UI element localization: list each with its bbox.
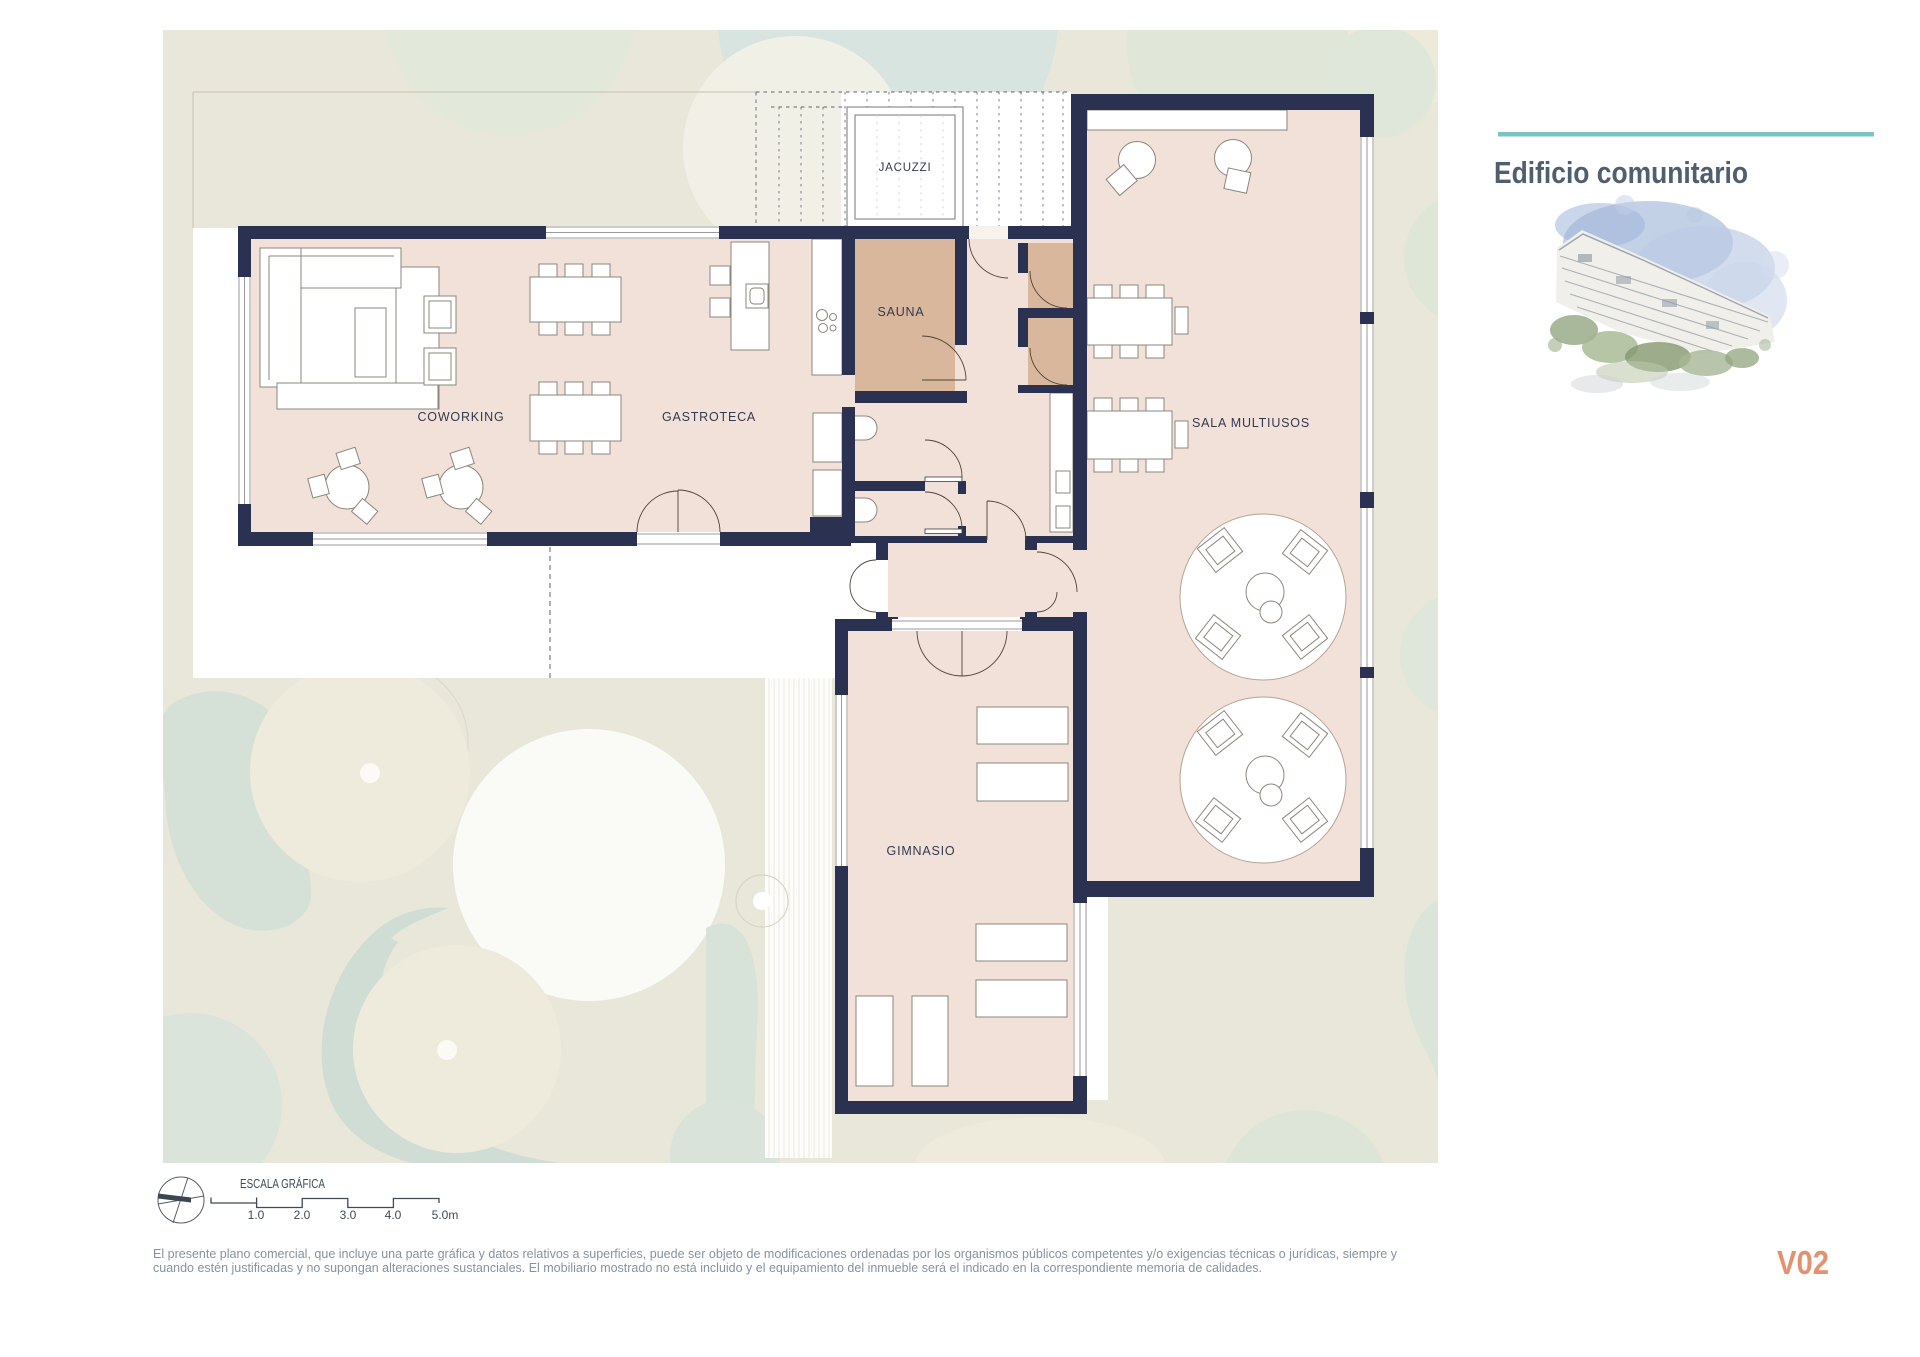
svg-text:2.0: 2.0 — [294, 1208, 311, 1222]
svg-text:El presente plano comercial, q: El presente plano comercial, que incluye… — [153, 1246, 1398, 1261]
svg-text:ESCALA GRÁFICA: ESCALA GRÁFICA — [240, 1176, 326, 1191]
svg-text:V02: V02 — [1777, 1244, 1829, 1281]
svg-text:3.0: 3.0 — [340, 1208, 357, 1222]
svg-text:GASTROTECA: GASTROTECA — [662, 410, 756, 424]
svg-text:1.0: 1.0 — [248, 1208, 265, 1222]
svg-text:JACUZZI: JACUZZI — [879, 162, 932, 174]
svg-text:SAUNA: SAUNA — [877, 305, 924, 319]
svg-text:COWORKING: COWORKING — [417, 410, 504, 424]
svg-text:4.0: 4.0 — [385, 1208, 402, 1222]
svg-text:5.0m: 5.0m — [432, 1208, 459, 1222]
svg-text:cuando estén justificadas y no: cuando estén justificadas y no supongan … — [153, 1260, 1262, 1275]
svg-text:GIMNASIO: GIMNASIO — [887, 844, 956, 858]
svg-text:Edificio comunitario: Edificio comunitario — [1494, 155, 1748, 190]
svg-text:SALA MULTIUSOS: SALA MULTIUSOS — [1192, 416, 1310, 430]
